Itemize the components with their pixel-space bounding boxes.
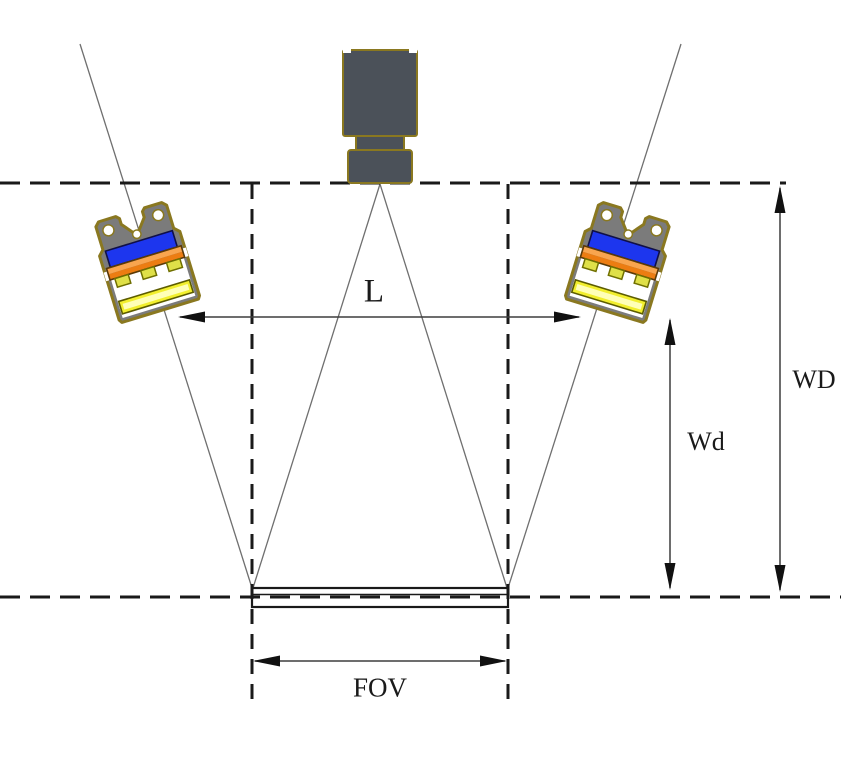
arrowhead-up [665,318,676,345]
l-label: L [364,276,384,309]
arrowhead-up [775,186,786,213]
fov-dimension [253,656,507,667]
diagram-stage: L WD Wd FOV [0,0,841,760]
wd-light-label: Wd [687,429,725,455]
wd-dimension [775,186,786,592]
bar-light-right [564,200,676,324]
arrowhead-down [665,563,676,590]
camera-fov-ray-left [253,184,380,588]
arrowhead-right [554,312,581,323]
camera [343,48,417,183]
light-axis-right [508,44,681,588]
light-axis-left [80,44,252,588]
diagram-canvas [0,0,841,760]
arrowhead-down [775,565,786,592]
wd-label: WD [792,367,835,393]
arrowhead-right [480,656,507,667]
arrowhead-left [178,312,205,323]
l-dimension [178,312,581,323]
fov-label: FOV [353,675,407,702]
camera-corner-notch-left [343,48,351,53]
wd-light-dimension [665,318,676,590]
arrowhead-left [253,656,280,667]
camera-body [343,50,417,136]
camera-lens [348,150,412,183]
bar-light-left [89,200,201,324]
camera-fov-ray-right [380,184,507,588]
camera-corner-notch-right [409,48,417,53]
